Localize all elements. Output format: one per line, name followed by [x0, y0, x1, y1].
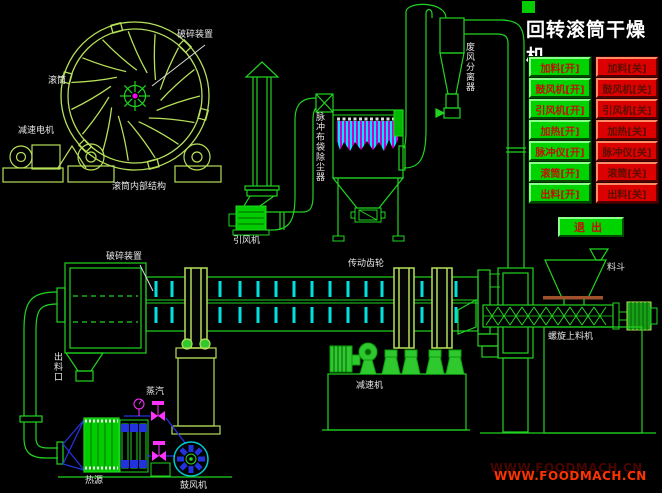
hmi-screen: 破碎装置 滚筒 减速电机 滚筒内部结构 脉冲布袋除尘器 引风机 废风分离器 破碎… — [0, 0, 662, 493]
drum-on-button[interactable]: 滚筒[开] — [529, 162, 591, 182]
heater-inlet-duct — [63, 420, 84, 470]
screw-feeder-unit — [483, 302, 657, 433]
label-induced-fan: 引风机 — [233, 236, 260, 246]
bag-dust-collector — [333, 110, 404, 241]
label-steam: 蒸汽 — [146, 387, 164, 397]
induced-fan-off-button[interactable]: 引风机[关] — [596, 99, 658, 119]
drum-left-discharge-box — [57, 263, 146, 381]
cyclone-separator — [436, 18, 526, 268]
heat-off-button[interactable]: 加热[关] — [596, 120, 658, 140]
watermark-text: WWW.FOODMACH.CN — [494, 469, 647, 483]
feed-on-button[interactable]: 加料[开] — [529, 57, 591, 77]
label-crusher-wheel: 破碎装置 — [177, 30, 213, 40]
label-cyclone: 废风分离器 — [464, 42, 474, 92]
material-level — [543, 296, 603, 300]
drum-off-button[interactable]: 滚筒[关] — [596, 162, 658, 182]
blower-off-button[interactable]: 鼓风机[关] — [596, 78, 658, 98]
drum-riding-rings — [185, 268, 452, 348]
label-screw-feeder: 螺旋上料机 — [548, 332, 593, 342]
label-discharge-port: 出料口 — [52, 352, 62, 382]
radiator-unit — [120, 420, 148, 472]
exhaust-stack — [244, 62, 279, 206]
off-button-column: 加料[关] 鼓风机[关] 引风机[关] 加热[关] 脉冲仪[关] 滚筒[关] 出… — [596, 57, 658, 204]
cyclone-outlet-pipe — [399, 4, 446, 170]
label-blower: 鼓风机 — [180, 481, 207, 491]
label-dust-collector: 脉冲布袋除尘器 — [314, 112, 324, 182]
blower-on-button[interactable]: 鼓风机[开] — [529, 78, 591, 98]
label-drive-gear: 传动齿轮 — [348, 259, 384, 269]
drum-support-pier — [172, 339, 220, 434]
exit-button[interactable]: 退出 — [558, 217, 624, 237]
feed-off-button[interactable]: 加料[关] — [596, 57, 658, 77]
induced-fan-on-button[interactable]: 引风机[开] — [529, 99, 591, 119]
induced-fan-unit — [229, 206, 269, 235]
drum-body — [146, 268, 500, 348]
label-gear-motor: 减速电机 — [18, 126, 54, 136]
label-drum-internal: 滚筒内部结构 — [112, 182, 166, 192]
label-reducer: 减速机 — [356, 381, 383, 391]
drum-end-chute — [458, 300, 476, 334]
heat-source-unit — [84, 418, 119, 472]
crusher-wheel-pointer-line — [152, 45, 205, 86]
lower-valve — [152, 451, 159, 461]
drive-foundation — [322, 374, 470, 430]
label-crusher-drum: 破碎装置 — [106, 252, 142, 262]
heat-on-button[interactable]: 加热[开] — [529, 120, 591, 140]
pulse-off-button[interactable]: 脉冲仪[关] — [596, 141, 658, 161]
label-hopper: 料斗 — [607, 263, 625, 273]
blower-unit — [174, 442, 208, 476]
discharge-on-button[interactable]: 出料[开] — [529, 183, 591, 203]
pulse-on-button[interactable]: 脉冲仪[开] — [529, 141, 591, 161]
discharge-off-button[interactable]: 出料[关] — [596, 183, 658, 203]
corner-marker — [522, 1, 535, 13]
steam-valve — [151, 411, 158, 421]
label-heat-source: 热源 — [85, 476, 103, 486]
feed-hopper — [543, 249, 608, 305]
feed-end-box — [478, 268, 656, 433]
wheel-drive-assembly — [3, 144, 221, 182]
label-drum-wheel: 滚筒 — [48, 76, 66, 86]
on-button-column: 加料[开] 鼓风机[开] 引风机[开] 加热[开] 脉冲仪[开] 滚筒[开] 出… — [529, 57, 591, 204]
crusher-hub — [120, 81, 150, 111]
